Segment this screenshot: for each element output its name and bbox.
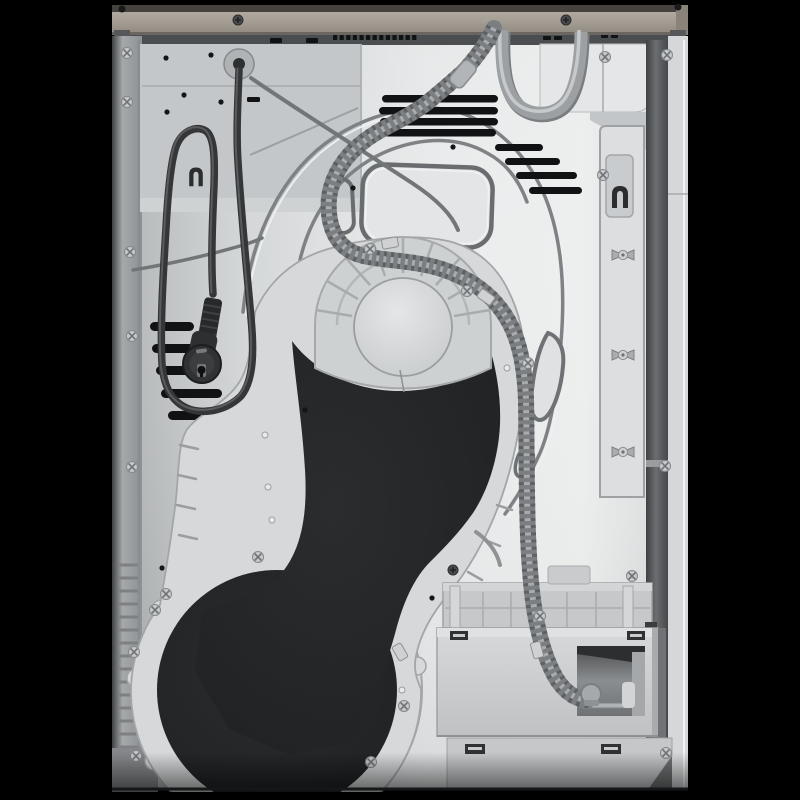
panel-hole [302,407,307,412]
vent-slot [384,129,496,137]
dryer-appliance [112,4,688,800]
standoff-screw-icon [612,250,634,260]
screw-icon [127,331,138,342]
screw-icon [161,589,172,600]
rivet-icon [262,432,268,438]
slot-vent [543,36,551,40]
screw-icon [129,647,140,658]
slot-vent [386,35,390,40]
screw-icon [600,52,611,63]
standoff-screw-icon [612,447,634,457]
rivet-icon [504,365,510,371]
slot-vent [392,35,396,40]
slot-vent [306,38,318,43]
screw-icon [365,244,376,255]
slot-vent [270,38,282,43]
screw-icon [399,701,410,712]
slot-vent [346,35,350,40]
dryer-rear-scene [0,0,800,800]
screw-icon [523,358,534,369]
screw-icon [660,461,671,472]
panel-hole [181,92,186,97]
slot-vent [554,36,562,40]
screw-icon [448,565,458,575]
panel-hole [429,595,434,600]
screw-icon [535,611,546,622]
raised-panel-section [540,44,650,112]
screw-icon [253,552,264,563]
panel-hole [450,144,455,149]
screw-icon [462,286,473,297]
bottom-shadow [112,752,688,792]
product-photo-dryer-rear [0,0,800,800]
slot-vent [333,35,337,40]
screw-icon [122,48,133,59]
slot-vent [406,35,410,40]
slot-vent [340,35,344,40]
stamped-window [361,164,494,248]
panel-hole [164,109,169,114]
screw-icon [561,15,571,25]
vent-slot [505,158,560,165]
slot-vent [366,35,370,40]
rivet-icon [269,517,275,523]
screw-icon [662,50,673,61]
fan-center-dome [354,278,452,376]
slot-vent [399,35,403,40]
screw-icon [119,6,126,13]
frame-tab [548,566,590,584]
slot-vent [379,35,383,40]
slot-vent [412,35,416,40]
panel-hole [350,185,355,190]
panel-hole [208,52,213,57]
rivet-icon [265,484,271,490]
panel-hole [218,99,223,104]
vent-slot [150,322,194,331]
screw-icon [233,15,243,25]
hose-clamp-icon [584,700,599,706]
screw-icon [122,97,133,108]
screw-icon [675,4,682,11]
screw-icon [150,605,161,616]
drain-stub [622,682,635,708]
hose-clip [381,237,398,250]
vent-slot [529,187,582,194]
screw-icon [127,462,138,473]
bracket-hook-recess [606,155,633,217]
slot-vent [359,35,363,40]
slot-vent [373,35,377,40]
screw-icon [125,247,136,258]
vent-slot [495,144,543,151]
screw-icon [598,170,609,181]
vent-slot [516,172,577,179]
standoff-screw-icon [612,350,634,360]
panel-hole [159,565,164,570]
panel-hole [163,55,168,60]
screw-icon [627,571,638,582]
rivet-icon [399,687,405,693]
slot-vent [353,35,357,40]
